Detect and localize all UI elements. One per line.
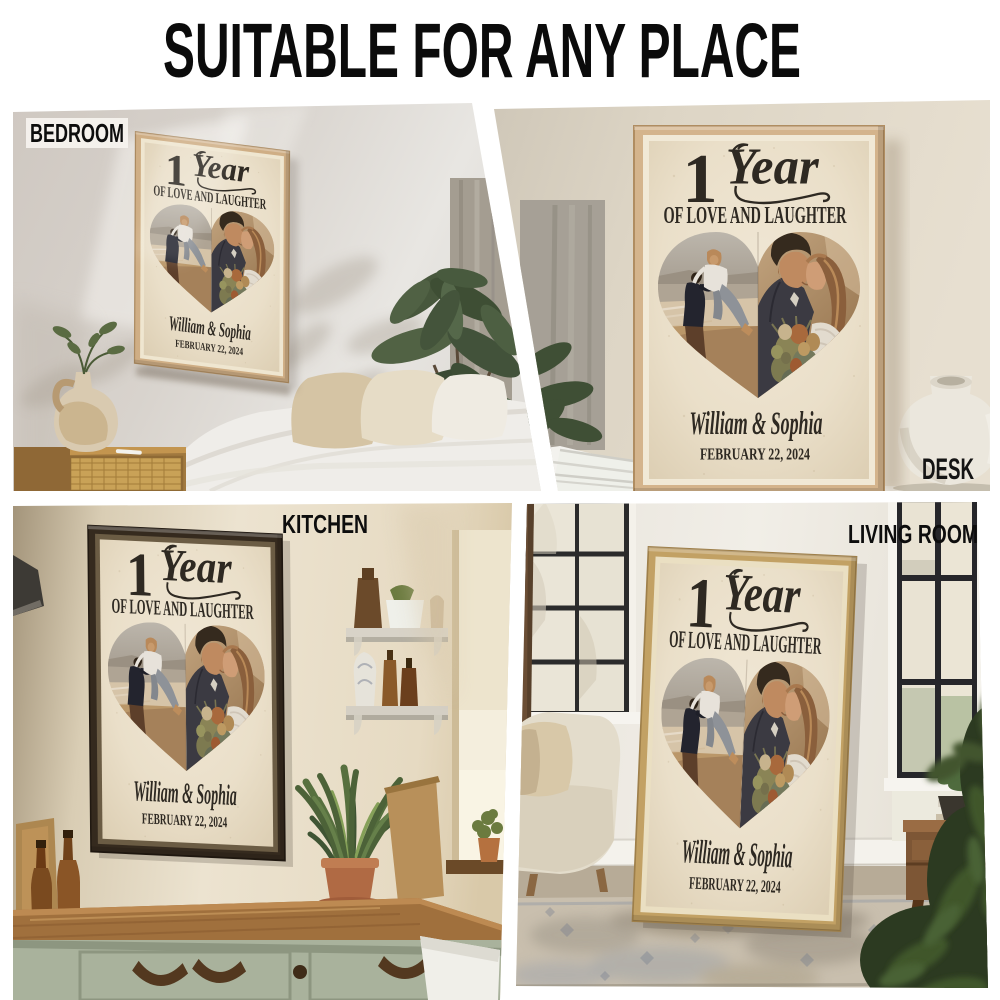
svg-text:SUITABLE FOR ANY PLACE: SUITABLE FOR ANY PLACE [163,8,801,94]
svg-text:LIVING ROOM: LIVING ROOM [848,519,978,549]
svg-text:KITCHEN: KITCHEN [282,509,368,539]
svg-text:BEDROOM: BEDROOM [30,118,124,148]
svg-text:DESK: DESK [922,453,974,486]
